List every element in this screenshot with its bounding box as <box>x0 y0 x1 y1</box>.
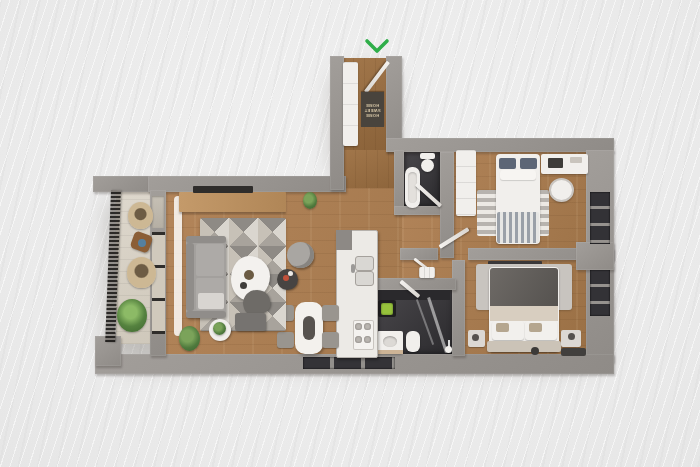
wall-entry-left <box>330 56 344 190</box>
sofa-back <box>186 243 194 311</box>
desk-accessory <box>570 157 582 163</box>
toilet-master <box>406 331 420 352</box>
desk-chair <box>549 178 574 202</box>
doormat: HOME SWEET HOME <box>361 92 384 127</box>
lamp-left <box>472 334 479 341</box>
kitchen-faucet <box>351 264 355 273</box>
dining-chair <box>322 305 339 321</box>
living-window-left <box>152 196 164 228</box>
coffee-table-decor <box>244 270 254 280</box>
bathtub-basin <box>408 172 417 203</box>
balcony-wicker-chair <box>127 257 156 288</box>
toilet-guest-bowl <box>421 159 434 172</box>
bed-north-pillow-navy-1 <box>499 158 516 169</box>
sofa-armrest-south <box>186 311 226 318</box>
sofa-armrest-north <box>186 236 226 243</box>
plant-on-side-table <box>213 322 226 335</box>
shower-head-base <box>445 346 452 353</box>
washing-machine-door <box>381 303 393 315</box>
potted-plant-living-sw <box>179 326 200 351</box>
lamp-right <box>568 333 575 340</box>
doormat-line-3: HOME <box>366 102 380 107</box>
potted-plant-living-ne <box>303 192 317 209</box>
entry-closet <box>343 62 358 146</box>
table-runner-decor <box>303 316 315 340</box>
kitchen-sink-basin-1 <box>355 256 374 271</box>
side-table-decor-red <box>283 275 289 281</box>
wall-top-right <box>386 138 614 152</box>
bed-south-cushion-1 <box>496 323 509 332</box>
floor-plan-stage: HOME SWEET HOME <box>0 0 700 467</box>
bed-north-pillow-white <box>500 170 536 180</box>
television <box>193 186 253 193</box>
window-bedroom-south <box>590 270 610 316</box>
bed-south-fold <box>490 306 558 321</box>
vanity-front <box>377 350 403 354</box>
tv-console <box>179 192 286 212</box>
bed-south-cushion-2 <box>529 323 542 332</box>
kitchen-island-end-cap <box>336 230 352 250</box>
balcony-wicker-chair <box>128 202 153 229</box>
wall-bedroom-divider-a <box>400 248 438 260</box>
wall-balcony-top <box>93 176 152 192</box>
sofa-throw-blanket <box>198 293 224 309</box>
floor-lamp <box>531 347 539 355</box>
vanity-basin <box>383 336 397 347</box>
dining-chair <box>277 332 294 348</box>
stove-burner <box>364 323 371 330</box>
wall-master-bath-top <box>372 278 456 290</box>
wardrobe <box>456 150 476 216</box>
window-bottom-living <box>303 357 395 369</box>
swivel-chair <box>287 242 314 268</box>
bed-north-throw <box>497 212 539 243</box>
side-table-decor-white <box>288 271 293 276</box>
sofa-cushion <box>196 244 224 276</box>
stove-burner <box>355 323 362 330</box>
chevron-down-icon <box>364 38 390 55</box>
window-bedroom-north <box>590 192 610 244</box>
bed-south-blanket <box>490 268 558 307</box>
dining-chair <box>322 332 339 348</box>
sheer-curtain <box>174 196 182 336</box>
stove-burner <box>364 336 371 343</box>
wall-guest-bath-left <box>394 150 404 214</box>
hallway-drawers <box>419 267 435 278</box>
ottoman <box>235 313 266 331</box>
balcony-glass-door <box>152 232 165 334</box>
kitchen-sink-basin-2 <box>355 271 374 286</box>
wall-pier-mid-right <box>576 242 614 270</box>
balcony-potted-plant <box>117 299 147 332</box>
bed-north-pillow-navy-2 <box>520 158 537 169</box>
balcony-table-decor <box>138 239 146 247</box>
stove-burner <box>355 336 362 343</box>
bed-south-headboard <box>487 341 561 352</box>
wall-bedroom-south-left <box>452 260 465 356</box>
laptop <box>548 158 563 168</box>
bench-runner <box>561 348 586 356</box>
coffee-table-decor-small <box>240 282 247 289</box>
